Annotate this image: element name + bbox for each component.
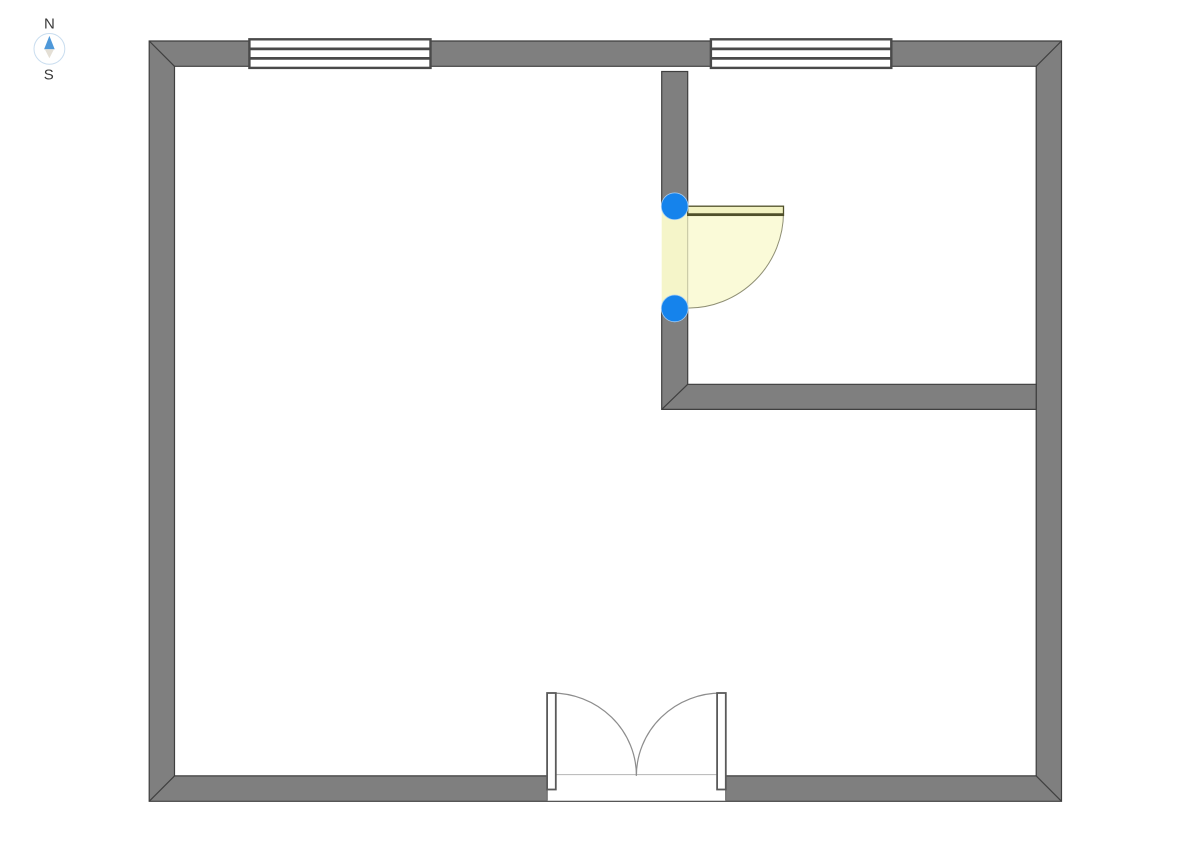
svg-text:S: S bbox=[44, 67, 54, 84]
svg-text:N: N bbox=[44, 16, 55, 33]
